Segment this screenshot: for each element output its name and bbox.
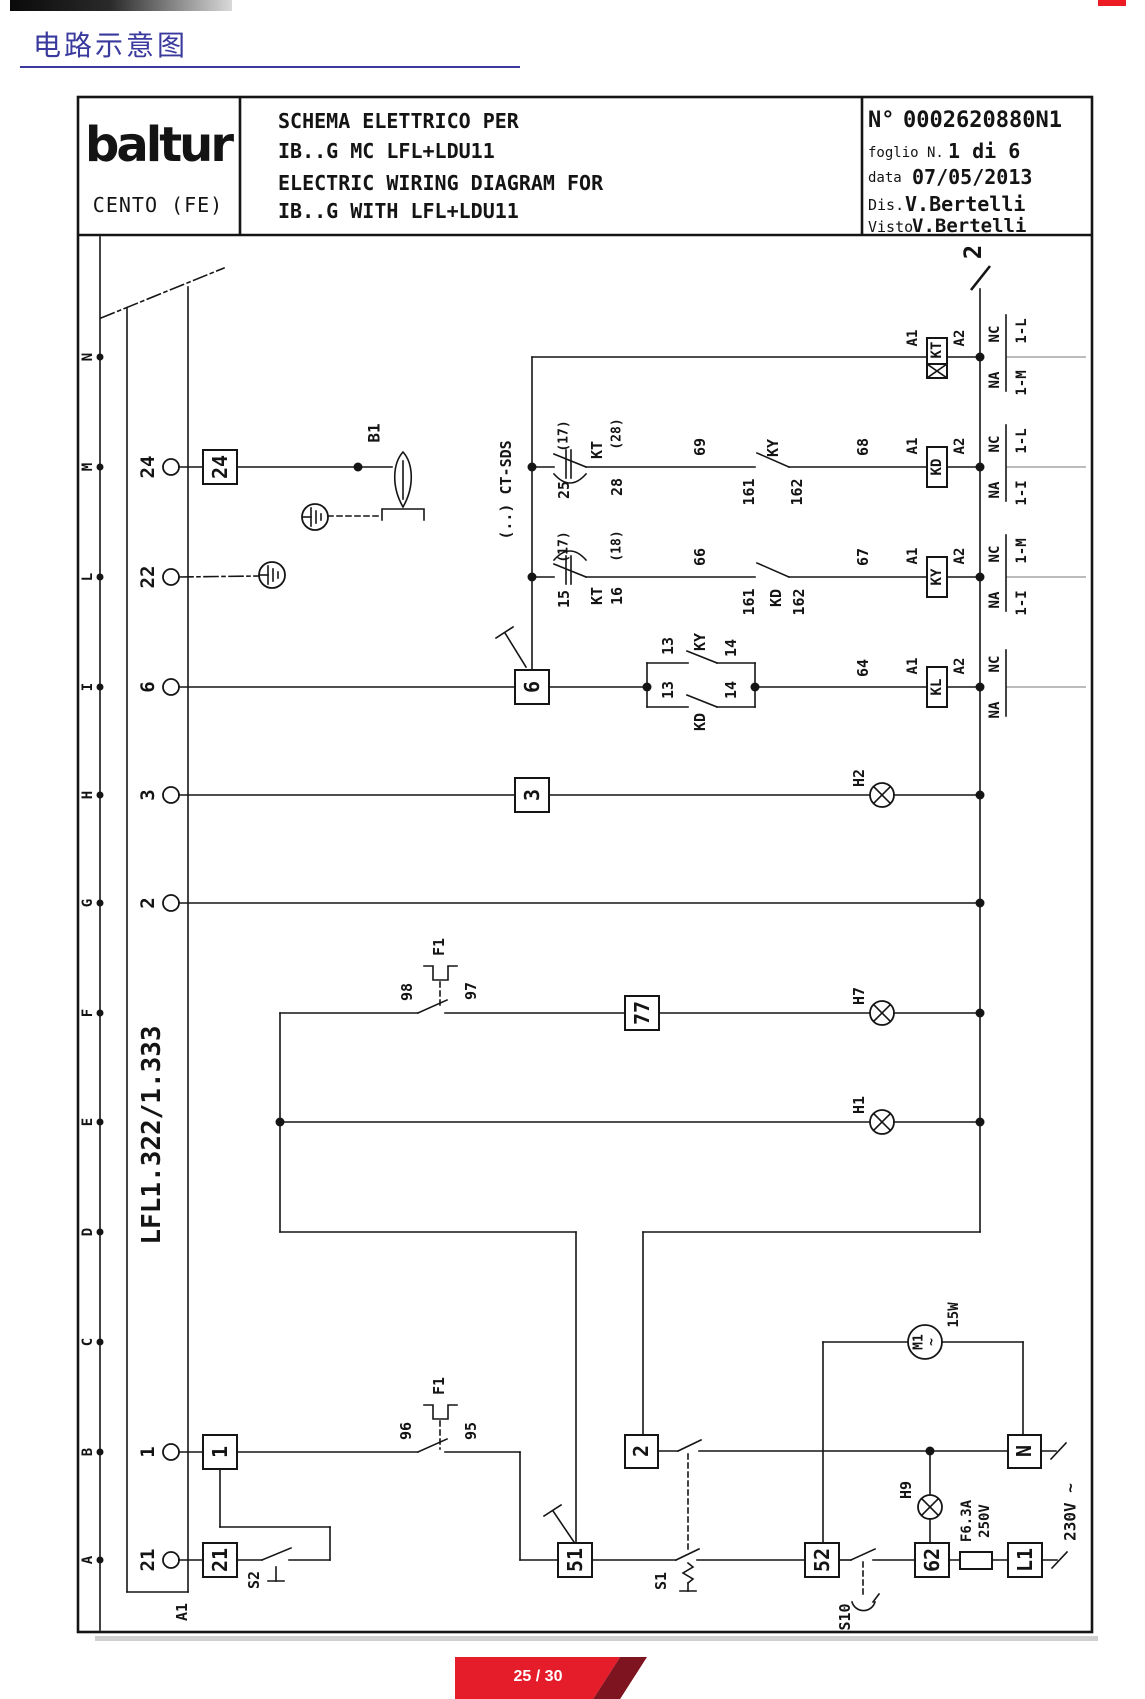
right-return-bus: 2: [959, 245, 990, 1232]
coil-kd-a2: A2: [952, 438, 968, 455]
lamp-h7-circuit: F1 98 97 77 H7: [276, 938, 981, 1232]
ct-sds-label: (..) CT-SDS: [497, 440, 515, 539]
box-62-label: 62: [920, 1548, 944, 1572]
lamp-icon: [870, 1001, 894, 1025]
xref-kd-na: NA: [987, 481, 1003, 498]
row-letter-m: M: [80, 463, 96, 471]
wire-161: 161: [740, 478, 758, 505]
coil-kl-a2: A2: [952, 658, 968, 675]
wire-95: 95: [462, 1422, 480, 1440]
relay-coil-kt: KT A1 A2 NC NA 1-L 1-M: [532, 315, 1086, 396]
branch-ky-coil: 15 (17) KT 16 (18) 66 161 KD 162 67 KY A…: [532, 530, 1086, 615]
wire-98: 98: [398, 983, 416, 1001]
xref-kt-na: NA: [987, 371, 1003, 388]
supply-voltage-label: 230V ~: [1061, 1483, 1080, 1541]
coil-kd-a1: A1: [905, 438, 921, 455]
coil-kt-a1: A1: [905, 330, 921, 347]
date-label: data: [868, 170, 902, 186]
wire-15-ref: (17): [557, 531, 572, 562]
terminal-pins: 24 22 6 3 2 1 21: [137, 456, 179, 1572]
lamp-icon: [870, 783, 894, 807]
title-italian-2: IB..G MC LFL+LDU11: [278, 139, 495, 163]
terminal-3-label: 3: [137, 789, 159, 800]
wire-68: 68: [854, 438, 872, 456]
sheet-continuation-slash: [971, 266, 990, 290]
xref-kt-1m: 1-M: [1014, 370, 1030, 395]
row-letter-e: E: [80, 1118, 96, 1126]
s1-spring-icon: [683, 1563, 693, 1583]
box-52-label: 52: [810, 1548, 834, 1572]
box-77-label: 77: [630, 1001, 654, 1025]
xref-kt-nc: NC: [987, 326, 1003, 343]
switch-s1-label: S1: [652, 1572, 670, 1590]
box-1-label: 1: [208, 1446, 232, 1458]
thermostat-f1b-label: F1: [430, 1377, 448, 1395]
wire-66: 66: [691, 548, 709, 566]
row-letter-h: H: [80, 791, 96, 799]
fuse-rating: F6.3A: [959, 1499, 975, 1542]
switch-s2-label: S2: [245, 1571, 263, 1589]
wire-69: 69: [691, 438, 709, 456]
wire-64: 64: [854, 659, 872, 677]
row-reference-column: N M L I H G F E D C B A: [80, 237, 104, 1630]
ground-icon: [302, 504, 328, 530]
flame-sensor-icon: [382, 452, 424, 520]
lamp-icon: [870, 1110, 894, 1134]
lamp-h9-label: H9: [897, 1481, 915, 1499]
doc-number-label: N°: [868, 108, 895, 133]
wire-14-bot: 14: [722, 681, 740, 699]
contact-ky2-label: KY: [691, 633, 709, 651]
box-2-label: 2: [629, 1445, 653, 1457]
title-italian-1: SCHEMA ELETTRICO PER: [278, 109, 520, 133]
coil-kl-label: KL: [929, 679, 945, 696]
coil-ky-a1: A1: [905, 548, 921, 565]
branch-kl-coil: 6 13 KY 14 13 KD 14 64 KL A1 A2: [179, 627, 1086, 731]
wiring-diagram: baltur CENTO (FE) SCHEMA ELETTRICO PER I…: [0, 0, 1145, 1699]
xref-kd-1l: 1-L: [1014, 428, 1030, 453]
ground-icon: [259, 562, 285, 588]
row-letter-a: A: [80, 1555, 96, 1564]
doc-number: 0002620880N1: [903, 108, 1062, 133]
line-row: 51 S1 52 S10 62 F6.3A 250V: [544, 1483, 1080, 1630]
coil-kt-a2: A2: [952, 330, 968, 347]
title-english-1: ELECTRIC WIRING DIAGRAM FOR: [278, 171, 604, 195]
box-6-label: 6: [520, 681, 544, 693]
coil-ky-label: KY: [929, 568, 945, 585]
thermostat-f1-label: F1: [430, 938, 448, 956]
remote-arrow-icon: [505, 633, 526, 667]
coil-kt-label: KT: [929, 342, 945, 359]
row-letter-n: N: [80, 353, 96, 361]
drawn-value: V.Bertelli: [905, 192, 1025, 216]
row-letter-g: G: [80, 899, 96, 907]
contact-ky-label: KY: [764, 439, 782, 457]
wire-162: 162: [788, 478, 806, 505]
terminal-21-label: 21: [137, 1549, 159, 1572]
row-d-links: [280, 1232, 980, 1543]
xref-ky-nc: NC: [987, 546, 1003, 563]
document-page: 电路示意图 baltur CENTO (FE) SCHEMA ELETTRICO…: [0, 0, 1145, 1699]
connector-a1-label: A1: [173, 1603, 191, 1621]
coil-ky-a2: A2: [952, 548, 968, 565]
start-circuit: 1 F1 96 95 21 S2: [179, 1377, 558, 1589]
wire-97: 97: [462, 982, 480, 1000]
sheet-label: foglio N.: [868, 145, 944, 161]
contact-kd2-label: KD: [691, 713, 709, 731]
wire-67: 67: [854, 548, 872, 566]
wire-28: 28: [608, 478, 626, 496]
baltur-logo: baltur: [85, 117, 234, 173]
box-l1-label: L1: [1013, 1548, 1037, 1572]
row-letter-i: I: [80, 683, 96, 691]
thermostat-f1-icon: [424, 966, 457, 980]
coil-kl-a1: A1: [905, 658, 921, 675]
xref-kd-1i: 1-I: [1014, 480, 1030, 505]
terminal-6-label: 6: [137, 681, 159, 692]
box-n-label: N: [1012, 1445, 1036, 1457]
supply-disconnect-line: [101, 268, 224, 318]
lamp-h1-label: H1: [850, 1096, 868, 1114]
motor-phase: ~: [925, 1338, 940, 1346]
page-number-badge: 25 / 30: [455, 1657, 647, 1699]
approved-value: V.Bertelli: [912, 215, 1026, 237]
title-english-2: IB..G WITH LFL+LDU11: [278, 199, 519, 223]
remote-arrow-icon: [553, 1511, 574, 1542]
contact-kt-label: KT: [588, 441, 606, 459]
xref-ky-1i: 1-I: [1014, 590, 1030, 615]
xref-kd-nc: NC: [987, 436, 1003, 453]
module-label: LFL1.322/1.333: [137, 1025, 167, 1244]
xref-ky-na: NA: [987, 591, 1003, 608]
wire-15: 15: [555, 590, 573, 608]
lamp-h7-label: H7: [850, 987, 868, 1005]
approved-label: Visto: [868, 218, 913, 236]
lamp-icon: [918, 1495, 942, 1519]
box-3-label: 3: [520, 789, 544, 801]
contact-kd-label: KD: [767, 589, 785, 607]
sheet-ref-label: 2: [959, 245, 987, 259]
wire-161b: 161: [740, 588, 758, 615]
wire-14-top: 14: [722, 639, 740, 657]
wire-96: 96: [397, 1422, 415, 1440]
neutral-row: 2 N: [625, 1435, 1066, 1553]
motor-power: 15W: [946, 1302, 962, 1328]
lamp-h9-circuit: H9: [897, 1451, 942, 1543]
lamp-h1-circuit: H1: [280, 1096, 980, 1134]
xref-kl-nc: NC: [987, 656, 1003, 673]
terminal-22-label: 22: [137, 566, 159, 589]
s10-actuator-icon: [852, 1602, 875, 1611]
xref-kl-na: NA: [987, 701, 1003, 718]
row-letter-d: D: [80, 1228, 96, 1236]
wire-13-bot: 13: [659, 681, 677, 699]
terminal-1-label: 1: [137, 1446, 159, 1457]
fuse-voltage: 250V: [977, 1504, 993, 1538]
xref-kt-1l: 1-L: [1014, 318, 1030, 343]
lamp-h2-circuit: 3 H2: [179, 769, 980, 812]
page-number: 25 / 30: [483, 1668, 593, 1686]
flame-detector-circuit: 24 B1: [179, 423, 424, 588]
thermostat-f1-icon: [424, 1405, 457, 1419]
coil-kd-label: KD: [929, 459, 945, 476]
row-letter-b: B: [80, 1448, 96, 1456]
wire-25-ref: (17): [557, 420, 572, 451]
contact-kt2-label: KT: [588, 587, 606, 605]
date-value: 07/05/2013: [912, 165, 1032, 189]
row-letter-f: F: [80, 1009, 96, 1017]
box-24-label: 24: [208, 455, 232, 479]
wire-25: 25: [555, 481, 573, 499]
logo-location: CENTO (FE): [93, 193, 223, 217]
title-block: baltur CENTO (FE) SCHEMA ELETTRICO PER I…: [85, 108, 1062, 237]
lamp-h2-label: H2: [850, 769, 868, 787]
fuse-icon: [960, 1552, 992, 1569]
box-21-label: 21: [208, 1548, 232, 1572]
terminal-2-label: 2: [137, 897, 159, 908]
switch-s10-label: S10: [836, 1603, 854, 1630]
branch-kd-coil: 25 (17) KT 28 (28) 69 161 KY 162 68 KD A…: [532, 418, 1086, 505]
xref-ky-1m: 1-M: [1014, 538, 1030, 563]
wire-13-top: 13: [659, 637, 677, 655]
ct-sds-bus: (..) CT-SDS: [497, 357, 537, 670]
sheet-value: 1 di 6: [948, 139, 1020, 163]
drawn-label: Dis.: [868, 196, 904, 214]
row-letter-l: L: [80, 573, 96, 581]
wire-162b: 162: [790, 588, 808, 615]
drawing-frame: [78, 97, 1092, 1632]
flame-detector-label: B1: [365, 423, 384, 442]
wire-28-ref: (28): [610, 418, 625, 449]
box-51-label: 51: [563, 1548, 587, 1572]
wire-16-ref: (18): [610, 530, 625, 561]
terminal-24-label: 24: [137, 456, 159, 479]
wire-16: 16: [608, 587, 626, 605]
row-letter-c: C: [80, 1338, 96, 1346]
